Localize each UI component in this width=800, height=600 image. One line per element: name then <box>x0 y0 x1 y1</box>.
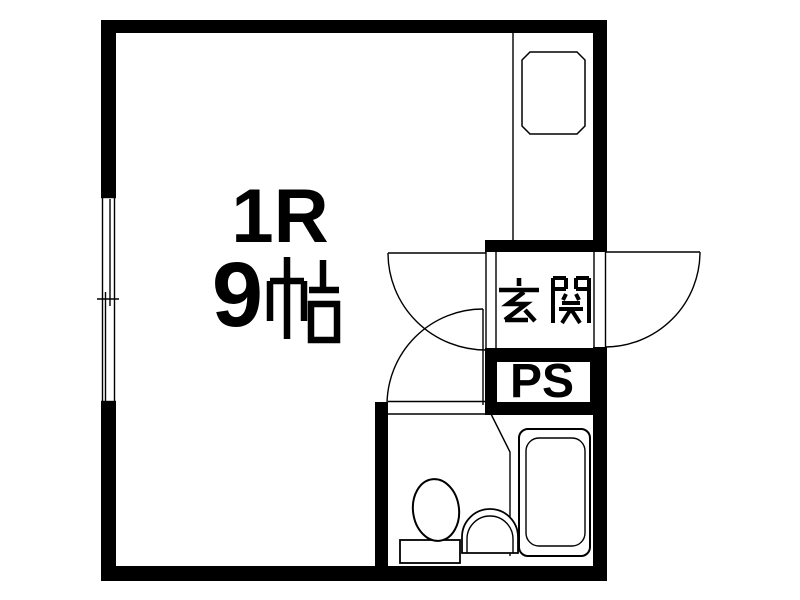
window <box>97 197 119 402</box>
wall-bottom <box>101 566 607 581</box>
bathroom-left-wall <box>375 402 388 566</box>
wall-top <box>101 20 607 33</box>
kan-kanji-glyph <box>553 278 589 323</box>
bathroom-door <box>387 309 483 405</box>
wall-right-upper <box>593 20 607 252</box>
bathroom-door-swing <box>387 309 483 405</box>
toilet-tank <box>400 540 460 563</box>
kitchen-area <box>513 33 585 240</box>
genkan-top-wall <box>485 240 607 252</box>
jou-kanji-glyph <box>270 257 339 340</box>
bathroom <box>375 402 590 567</box>
gen-kanji-glyph <box>499 278 539 321</box>
labels: 1R 9 <box>212 174 589 408</box>
room-size-number: 9 <box>212 244 263 346</box>
toilet <box>409 476 462 543</box>
entrance-label <box>499 278 589 323</box>
wall-left-upper <box>101 20 116 197</box>
room-entry-door-swing <box>388 253 486 350</box>
floor-plan-drawing: 1R 9 <box>0 0 800 600</box>
kitchen-sink <box>522 52 585 134</box>
wall-left-lower <box>101 402 116 581</box>
bathtub <box>519 429 590 556</box>
front-door-swing <box>605 252 700 347</box>
front-door <box>605 252 700 347</box>
pipe-space-label: PS <box>510 355 574 408</box>
room-entry-door <box>388 253 486 350</box>
floor-plan: 1R 9 <box>0 0 800 600</box>
room-size-label: 9 <box>212 244 339 346</box>
